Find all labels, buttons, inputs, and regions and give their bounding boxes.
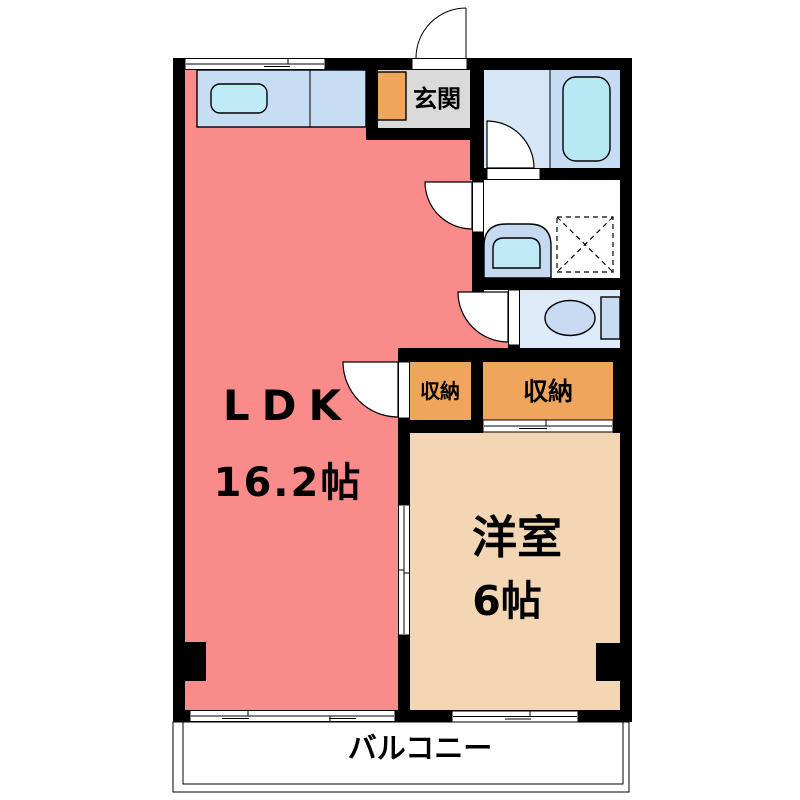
toilet-icon [545,297,620,339]
kitchen-sink-icon [211,84,267,113]
doorway-gap [473,182,484,232]
pillar-left [182,642,206,681]
kitchen-counter [197,70,366,127]
wall-storage-small-bottom [398,420,483,433]
floor-plan-drawing: LDK 16.2帖 洋室 6帖 玄関 収納 収納 バルコニー [0,0,800,800]
window-kitchen [185,59,325,70]
washbasin-icon [484,224,551,278]
window-western-balcony [452,711,578,722]
doorway-gap [399,362,410,418]
western-room-label: 洋室 [472,511,562,564]
wall-entrance-bottom [366,128,473,140]
wall-washroom-bottom [472,278,632,290]
doorway-gap [487,169,540,180]
storage-small-label: 収納 [420,379,460,403]
bathtub-icon [563,77,610,161]
wall-kitchen-entrance [366,58,378,140]
wall-storage-divider [471,362,483,420]
wall-left [173,58,185,722]
floor-plan: LDK 16.2帖 洋室 6帖 玄関 収納 収納 バルコニー [0,0,800,800]
doorway-gap [412,59,467,70]
storage-large-label: 収納 [523,377,573,406]
washbasin-bowl [493,238,540,268]
wall-storage-top [398,348,632,362]
ldk-area-label: 16.2帖 [214,460,363,506]
pillar-right [596,643,620,681]
wall-right [620,58,632,722]
balcony-label: バルコニー [348,731,492,765]
entrance-label: 玄関 [413,85,461,113]
wall-entrance-bathroom [470,58,484,180]
toilet-tank [601,297,620,339]
storage-large-sliding-door [483,420,613,432]
ldk-label: LDK [223,381,353,430]
wall-storage-right [613,362,620,433]
ldk-western-sliding-door [399,505,410,635]
window-ldk-balcony [190,711,395,722]
western-room-area-label: 6帖 [472,577,542,625]
toilet-bowl [545,301,595,336]
shoe-cabinet [377,72,406,120]
doorway-gap [509,290,520,345]
